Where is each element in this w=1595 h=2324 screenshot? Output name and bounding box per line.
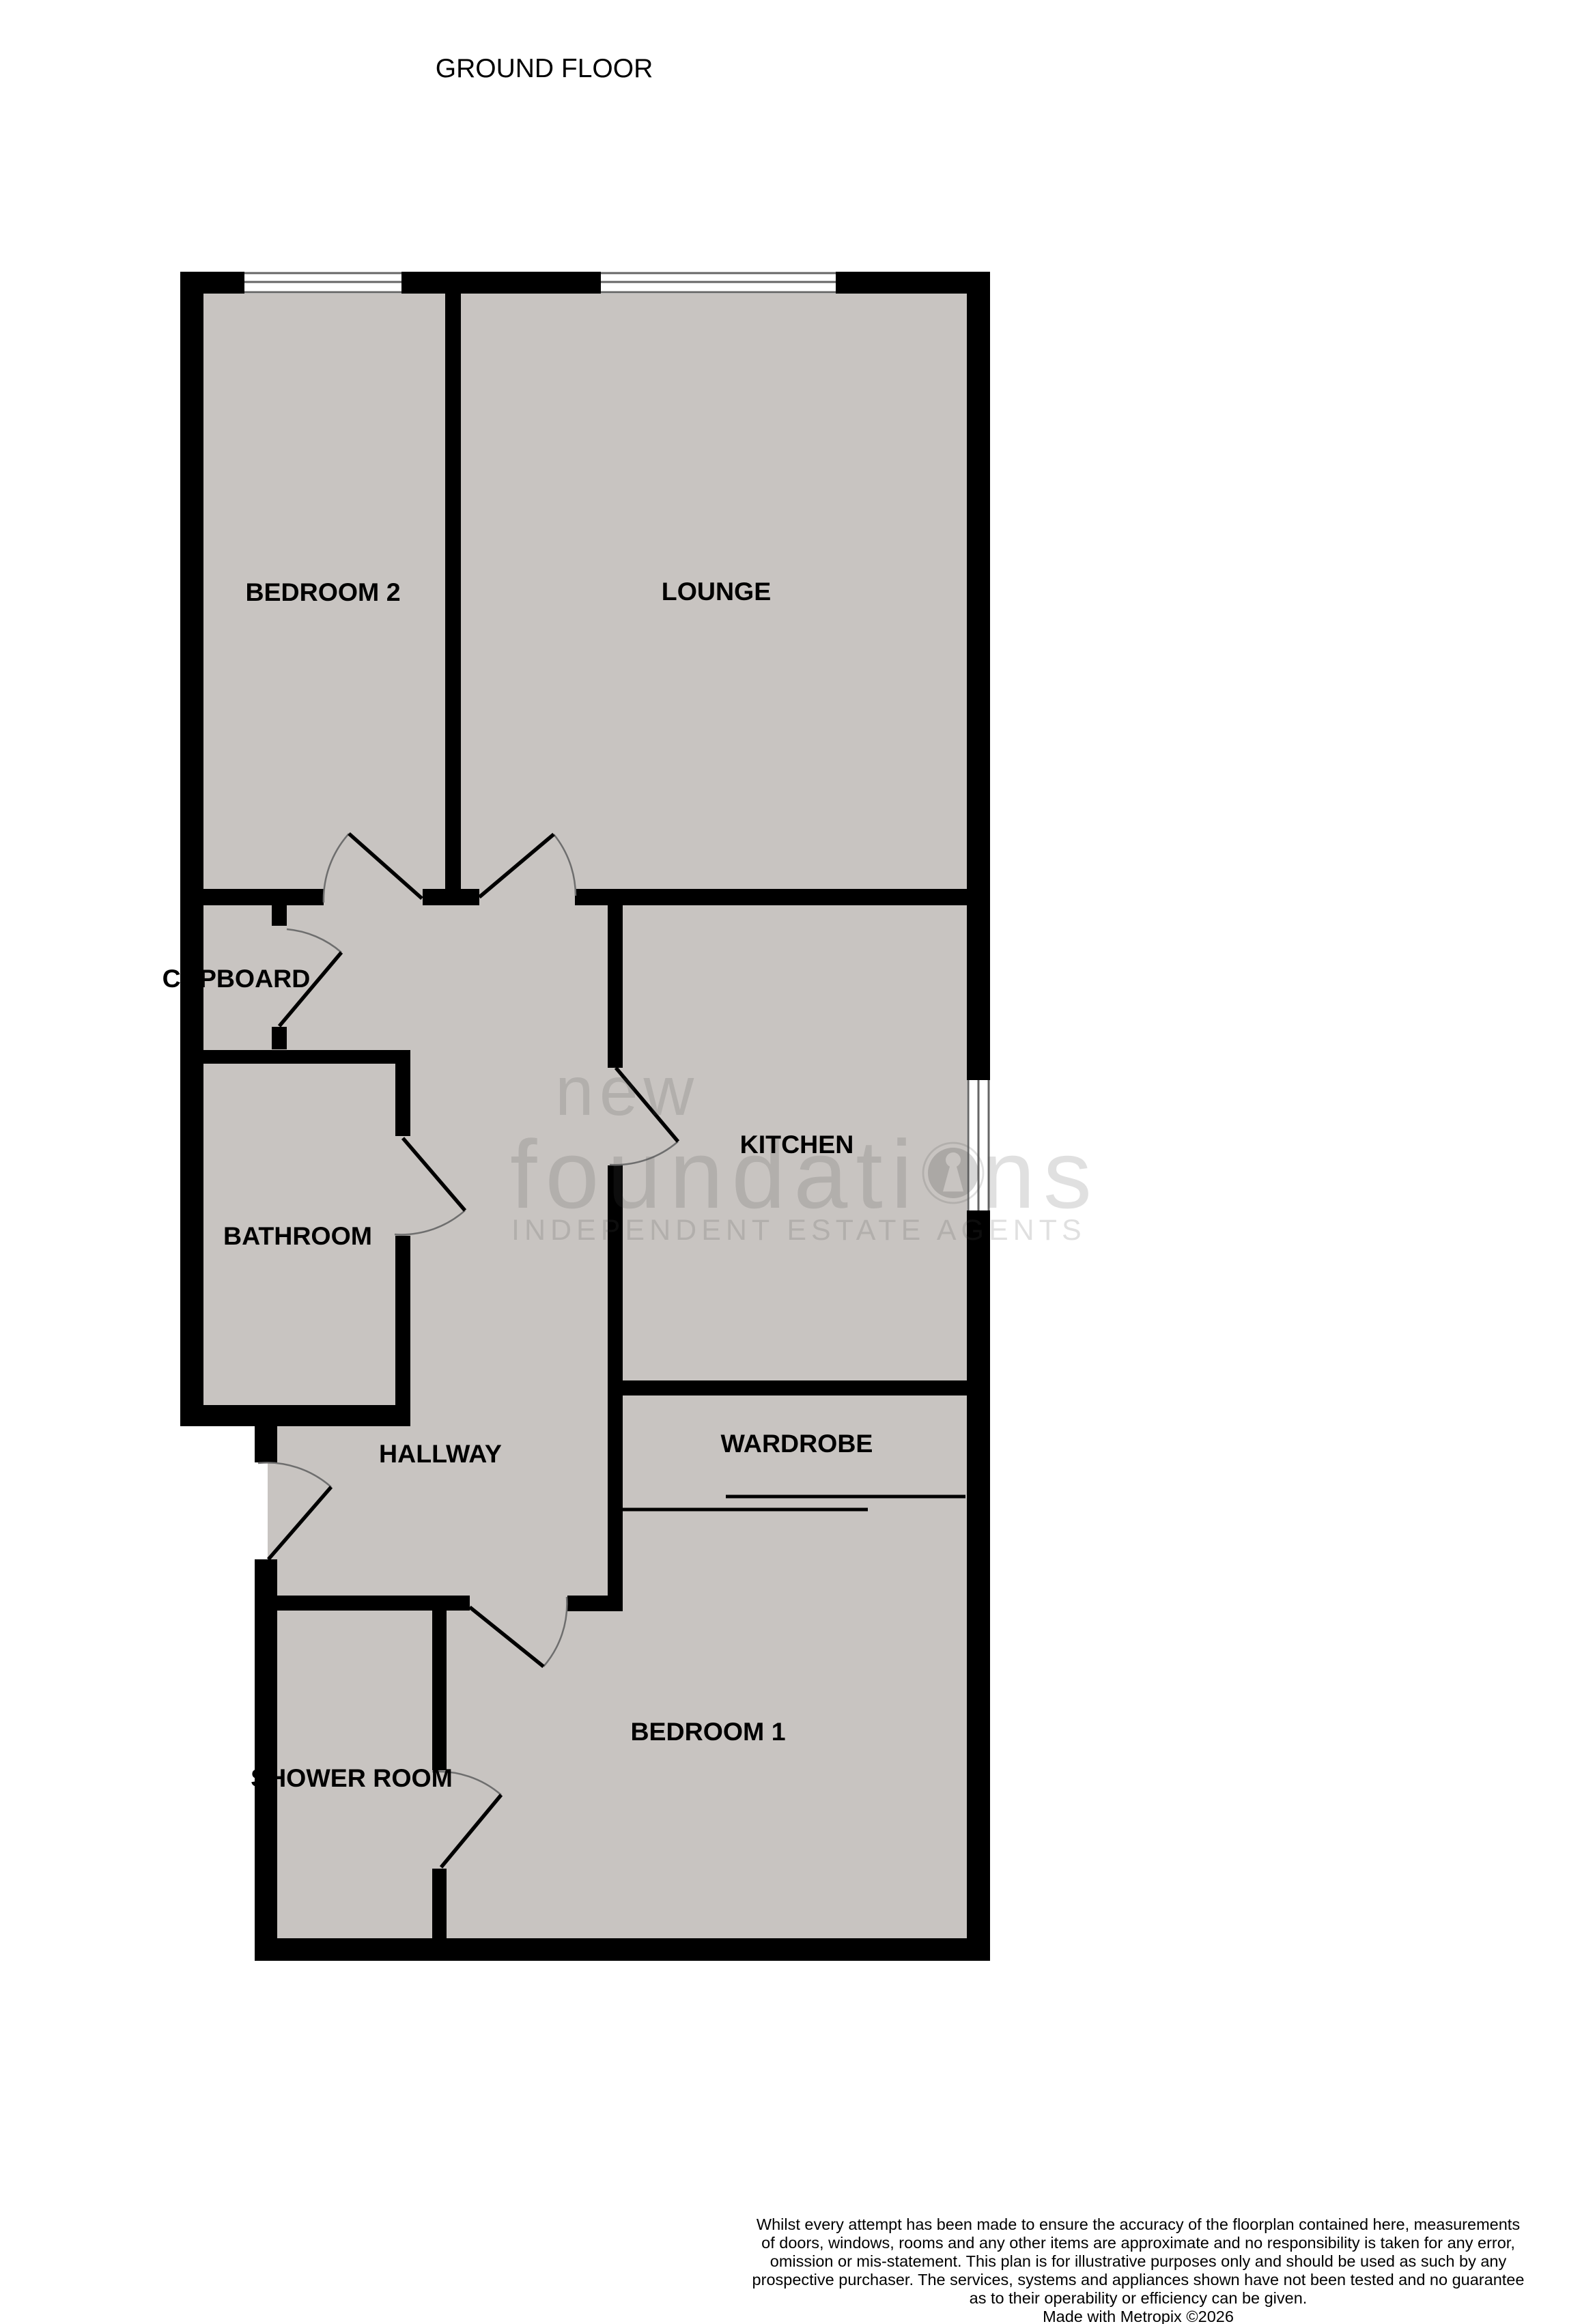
svg-text:SHOWER ROOM: SHOWER ROOM xyxy=(251,1763,453,1792)
svg-text:of doors, windows, rooms and a: of doors, windows, rooms and any other i… xyxy=(761,2234,1515,2252)
svg-text:BEDROOM 1: BEDROOM 1 xyxy=(630,1717,785,1746)
svg-text:INDEPENDENT ESTATE AGENTS: INDEPENDENT ESTATE AGENTS xyxy=(511,1214,1086,1247)
svg-text:prospective purchaser. The ser: prospective purchaser. The services, sys… xyxy=(752,2271,1525,2288)
svg-text:as to their operability or eff: as to their operability or efficiency ca… xyxy=(970,2289,1308,2307)
svg-text:foundati: foundati xyxy=(510,1120,920,1229)
svg-text:new: new xyxy=(555,1052,699,1130)
svg-text:GROUND FLOOR: GROUND FLOOR xyxy=(436,54,653,83)
svg-text:ns: ns xyxy=(981,1120,1100,1229)
svg-text:Whilst every attempt has been: Whilst every attempt has been made to en… xyxy=(757,2215,1520,2233)
svg-text:KITCHEN: KITCHEN xyxy=(740,1130,854,1159)
svg-text:CUPBOARD: CUPBOARD xyxy=(163,964,311,993)
svg-text:BATHROOM: BATHROOM xyxy=(223,1221,372,1250)
svg-text:HALLWAY: HALLWAY xyxy=(379,1439,502,1468)
svg-text:BEDROOM 2: BEDROOM 2 xyxy=(245,578,400,606)
svg-text:omission or mis-statement. Thi: omission or mis-statement. This plan is … xyxy=(770,2252,1507,2270)
svg-text:WARDROBE: WARDROBE xyxy=(721,1429,873,1458)
svg-text:Made with Metropix ©2026: Made with Metropix ©2026 xyxy=(1043,2308,1234,2324)
svg-text:LOUNGE: LOUNGE xyxy=(662,577,771,606)
